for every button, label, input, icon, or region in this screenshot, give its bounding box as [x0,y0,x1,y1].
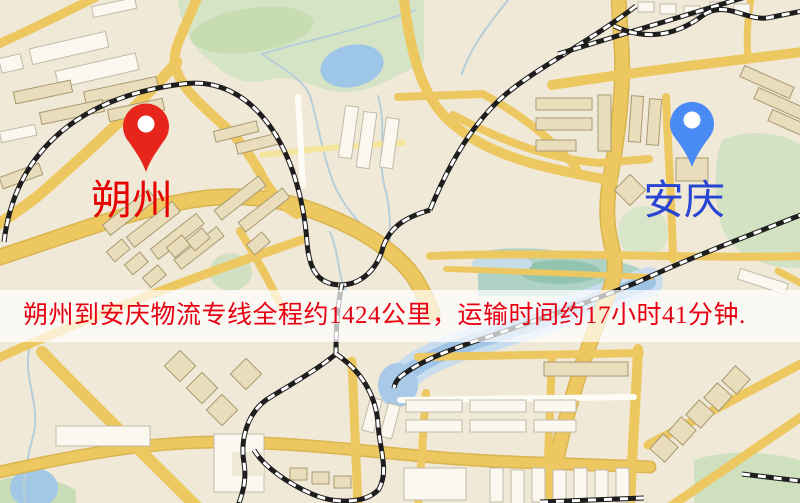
pin-hole [684,112,701,129]
route-info-text: 朔州到安庆物流专线全程约1424公里，运输时间约17小时41分钟. [23,302,746,329]
destination-city-label: 安庆 [643,180,725,221]
origin-city-label: 朔州 [91,180,173,221]
map-screenshot: 朔州 安庆 朔州到安庆物流专线全程约1424公里，运输时间约17小时41分钟. [0,0,800,503]
base-map [0,0,800,503]
route-info-banner: 朔州到安庆物流专线全程约1424公里，运输时间约17小时41分钟. [0,290,800,342]
pin-hole [138,116,155,133]
